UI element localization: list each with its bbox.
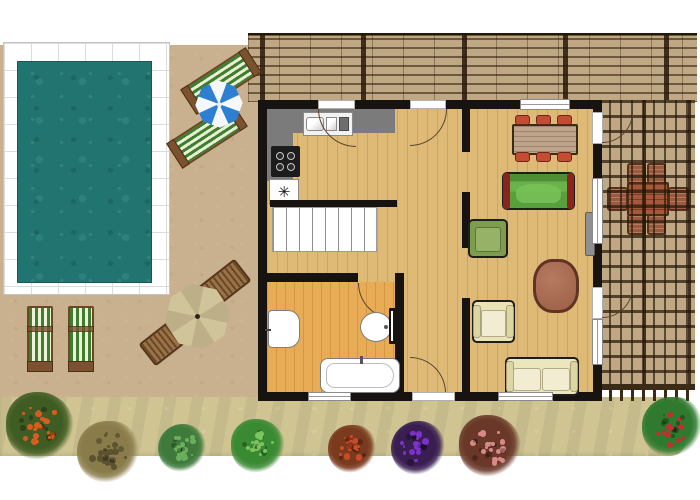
door-threshold — [318, 100, 355, 109]
dining-chair — [515, 152, 530, 162]
pergola-deck — [598, 100, 695, 390]
rug — [533, 259, 579, 313]
pink-flower-bush — [459, 415, 521, 477]
window — [308, 392, 351, 401]
green-armchair — [468, 219, 508, 258]
dining-chair — [557, 115, 572, 125]
stove — [271, 146, 300, 177]
bathtub — [320, 358, 400, 393]
orange-flower-bush — [6, 392, 74, 460]
partition-wall-segment — [462, 109, 470, 152]
olive-bush — [77, 421, 139, 483]
purple-flower-bush — [391, 421, 445, 475]
dining-chair — [557, 152, 572, 162]
red-green-bush — [642, 397, 700, 457]
window — [498, 392, 553, 401]
stair-wall — [270, 200, 397, 207]
entry-door-arc — [410, 109, 447, 146]
swimming-pool — [3, 42, 170, 295]
kitchen-door-arc — [318, 109, 356, 147]
staircase — [272, 207, 377, 252]
partition-wall-segment — [462, 298, 470, 392]
toilet — [360, 312, 392, 342]
hall-door-arc — [410, 357, 446, 393]
window — [520, 99, 570, 110]
pergola-roof — [248, 33, 697, 102]
cream-sofa — [505, 357, 579, 396]
house: ✳ — [258, 100, 602, 401]
toilet-tank — [389, 308, 398, 344]
green-bush — [158, 424, 206, 472]
dining-chair — [515, 115, 530, 125]
striped-deck-chair — [68, 306, 94, 372]
bathroom-sink — [268, 310, 300, 348]
appliance-symbol: ✳ — [278, 185, 291, 200]
door-threshold — [410, 100, 446, 109]
red-flower-bush — [328, 425, 376, 473]
window — [592, 319, 603, 365]
dining-chair — [536, 115, 551, 125]
floor-plan-scene: ✳ — [0, 0, 700, 500]
pool-water — [17, 61, 152, 283]
dining-chair — [536, 152, 551, 162]
door-threshold — [412, 392, 455, 401]
dining-table — [512, 124, 578, 155]
cream-armchair — [472, 300, 515, 343]
striped-deck-chair — [27, 306, 53, 372]
green-sofa — [502, 172, 575, 210]
pergola-grid — [598, 100, 695, 390]
bathroom-wall-top — [267, 273, 358, 282]
green-bush — [231, 419, 285, 473]
window — [592, 178, 603, 244]
